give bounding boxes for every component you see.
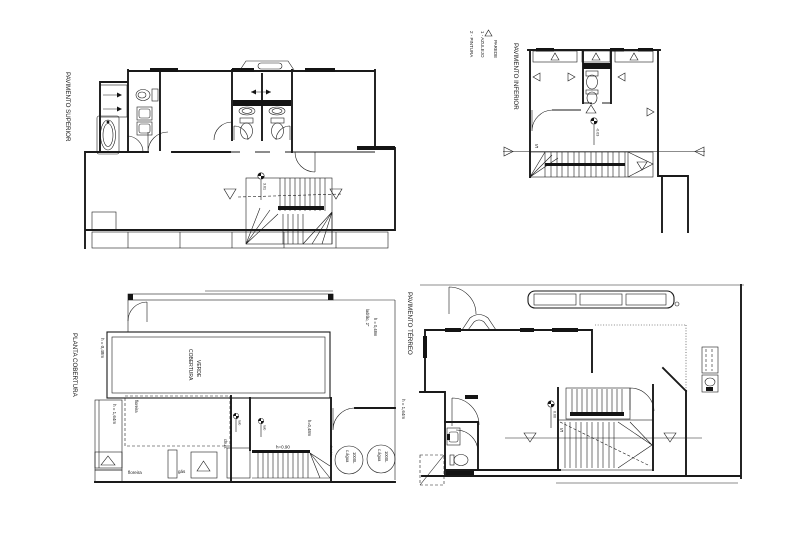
kitchen-cabinet — [702, 347, 718, 392]
legend-pintura: 2 - PINTURA — [469, 31, 474, 57]
wc — [445, 422, 478, 475]
stair-direction-label: S — [535, 144, 539, 150]
roof-drain-2: ralo — [258, 418, 266, 437]
tank-label: c.água — [345, 450, 350, 463]
stair-height-label: h=0.90 — [276, 445, 290, 450]
water-tank-room: c.água 1000L c.água 1000L divisória — [329, 408, 395, 474]
plan-cobertura: PLANTA COBERTURA COBERTURA VERDE h = 0,4… — [71, 291, 406, 482]
level-value: -0.03 — [596, 128, 600, 136]
section-cut-line — [503, 147, 705, 156]
planter-left: h = 1,64m — [95, 400, 122, 482]
overflow-note-2: h = 0,48m — [373, 318, 378, 337]
fireplace-bump — [462, 315, 496, 331]
washbasin — [137, 107, 152, 135]
tank-volume: 1000L — [352, 452, 357, 464]
level-marker-inferior: -0.03 — [591, 118, 600, 145]
green-roof-label-1: COBERTURA — [187, 349, 193, 381]
toilet — [136, 89, 158, 101]
level-value: 0.00 — [553, 411, 557, 418]
wardrobe-hatch — [533, 51, 653, 62]
terreo-walls — [420, 325, 686, 476]
plan-inferior-title: PAVIMENTO INFERIOR — [512, 43, 519, 110]
garden-bed — [420, 455, 444, 485]
deck-hatch: floreira — [125, 396, 230, 446]
legend: PAREDE 1 - AZULEJO 2 - PINTURA — [469, 30, 498, 58]
drain-label: ralo — [238, 420, 242, 426]
mid-height-label: h=0,48m — [307, 420, 312, 437]
tank-volume: 1000L — [384, 451, 389, 463]
legend-parede: PAREDE — [493, 40, 498, 58]
inferior-walls — [528, 48, 688, 232]
green-roof-room: COBERTURA VERDE — [107, 332, 330, 398]
terreo-boundary — [420, 285, 744, 483]
floor-plan-sheet: PAVIMENTO SUPERIOR — [0, 0, 802, 535]
staircase-terreo: S — [558, 385, 654, 470]
wall-finish-markers-superior — [224, 189, 342, 199]
stair-direction-label: S — [560, 428, 564, 434]
staircase-superior — [238, 178, 342, 244]
door-arcs-superior — [127, 122, 315, 172]
tank-label: c.água — [377, 449, 382, 462]
green-roof-label-2: VERDE — [195, 360, 201, 378]
plan-terreo-title: PAVIMENTO TÉRREO — [406, 292, 413, 355]
plan-terreo: PAVIMENTO TÉRREO — [406, 285, 744, 485]
roof-drain-1: ralo — [233, 413, 241, 432]
plan-cobertura-title: PLANTA COBERTURA — [71, 333, 78, 398]
cad-drawing: PAVIMENTO SUPERIOR — [0, 0, 802, 535]
plan-superior: PAVIMENTO SUPERIOR — [64, 61, 395, 248]
overflow-note-1: ladrão, 2" — [365, 309, 370, 327]
drain-label: ralo — [263, 425, 267, 431]
entry-gate-arc — [449, 287, 476, 314]
parapet-height-right: h = 1,64m — [401, 399, 406, 419]
divisoria-label: divisória — [329, 445, 333, 457]
superior-walls — [85, 68, 395, 248]
wc-toilet — [454, 455, 468, 466]
staircase-inferior — [530, 152, 653, 177]
planter-height: h = 1,64m — [112, 404, 117, 424]
bathroom-inferior — [583, 63, 611, 113]
plan-superior-title: PAVIMENTO SUPERIOR — [64, 72, 71, 142]
gas-label: gás — [178, 469, 186, 474]
section-cut-line-terreo — [505, 433, 702, 442]
plan-inferior: PAREDE 1 - AZULEJO 2 - PINTURA PAVIMENTO… — [469, 30, 705, 232]
door-arc-inferior — [532, 110, 553, 131]
upper-slab-edge — [128, 291, 333, 332]
floreira-bottom-label: floreira — [128, 470, 142, 475]
level-value: 3.01 — [263, 183, 267, 190]
legend-azulejo: 1 - AZULEJO — [480, 31, 485, 58]
closet-with-arrows — [100, 85, 127, 117]
parapet-height-left: h = 0,48m — [100, 338, 105, 358]
deck-tables — [528, 291, 679, 308]
level-marker-terreo: 0.00 — [548, 401, 557, 428]
floreira-side-label: floreira — [134, 400, 139, 413]
